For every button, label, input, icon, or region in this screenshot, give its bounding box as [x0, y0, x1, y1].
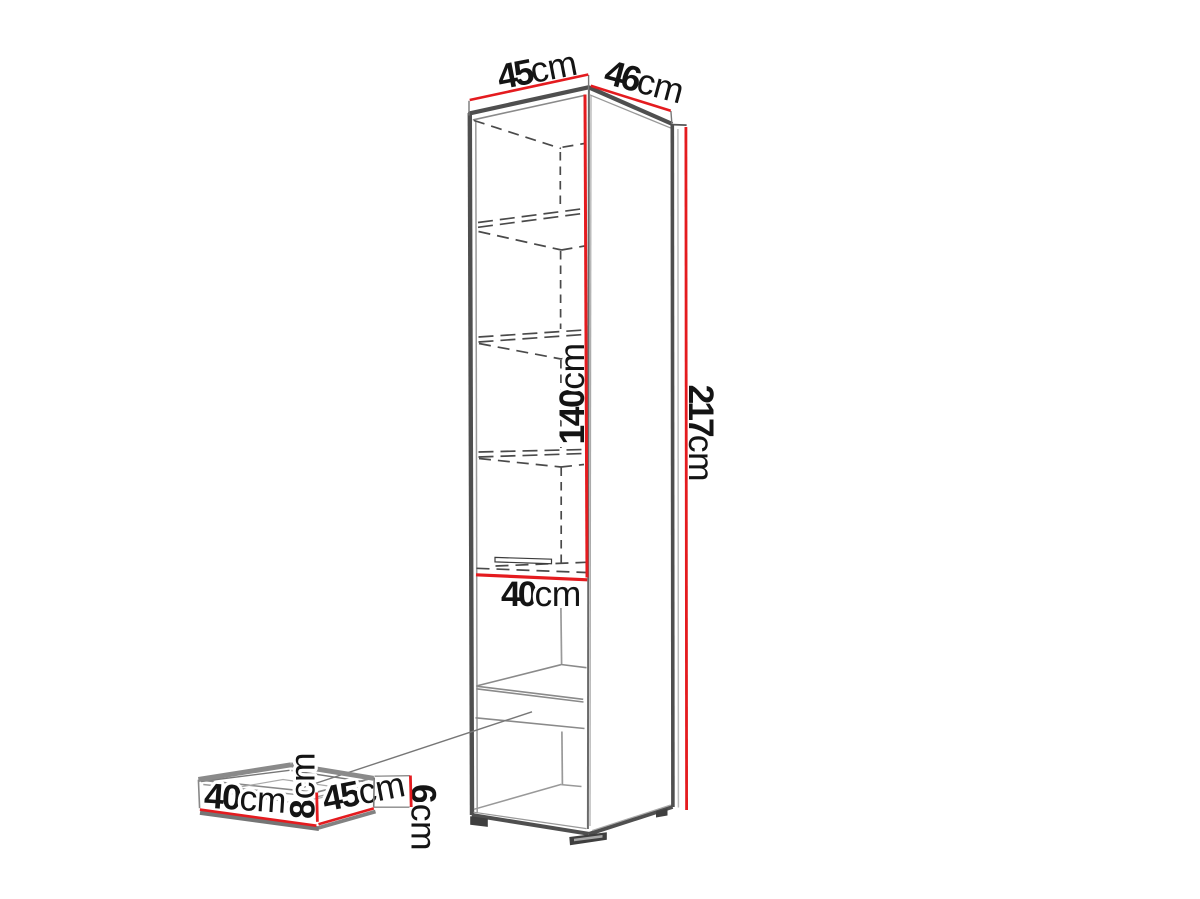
svg-text:40cm: 40cm [203, 776, 287, 821]
